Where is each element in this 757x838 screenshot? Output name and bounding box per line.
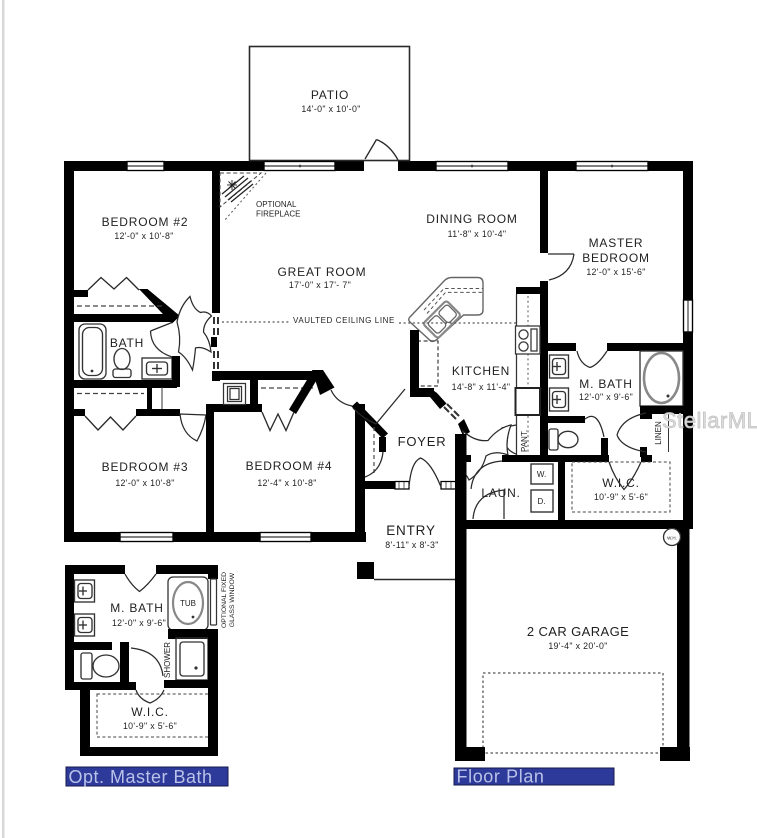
svg-text:KITCHEN: KITCHEN (452, 364, 510, 378)
svg-text:W.I.C.: W.I.C. (131, 705, 168, 719)
svg-text:PANT.: PANT. (520, 430, 529, 452)
svg-text:W.I.C.: W.I.C. (602, 476, 639, 490)
svg-text:10'-9" x 5'-6": 10'-9" x 5'-6" (594, 492, 648, 502)
svg-text:12'-0" x 9'-6": 12'-0" x 9'-6" (579, 392, 633, 402)
svg-text:12'-0" x 10'-8": 12'-0" x 10'-8" (115, 478, 174, 488)
svg-text:PATIO: PATIO (311, 88, 349, 102)
svg-text:12'-0" x 9'-6": 12'-0" x 9'-6" (112, 618, 166, 628)
svg-text:BEDROOM #4: BEDROOM #4 (246, 459, 333, 473)
svg-text:GLASS WINDOW: GLASS WINDOW (229, 572, 236, 627)
svg-text:D.: D. (538, 497, 546, 506)
svg-text:DINING ROOM: DINING ROOM (426, 212, 517, 226)
svg-text:Floor Plan: Floor Plan (457, 767, 545, 787)
svg-text:17'-0" x 17'- 7": 17'-0" x 17'- 7" (289, 280, 351, 290)
svg-text:W.: W. (537, 470, 546, 479)
svg-text:2 CAR GARAGE: 2 CAR GARAGE (527, 624, 629, 639)
svg-text:StellarMLS: StellarMLS (662, 408, 757, 433)
svg-text:Opt. Master Bath: Opt. Master Bath (69, 767, 213, 787)
svg-text:FOYER: FOYER (398, 434, 447, 449)
svg-text:12'-0" x 10'-8": 12'-0" x 10'-8" (114, 231, 173, 241)
svg-text:VAULTED CEILING LINE: VAULTED CEILING LINE (293, 316, 395, 325)
svg-text:MASTER: MASTER (589, 236, 644, 250)
svg-text:M. BATH: M. BATH (110, 601, 163, 615)
svg-text:GREAT ROOM: GREAT ROOM (278, 265, 367, 279)
svg-text:10'-9" x 5'-6": 10'-9" x 5'-6" (123, 721, 177, 731)
svg-text:SHOWER: SHOWER (163, 642, 172, 678)
svg-text:12'-4" x 10'-8": 12'-4" x 10'-8" (257, 478, 316, 488)
svg-text:8'-11" x 8'-3": 8'-11" x 8'-3" (385, 540, 438, 550)
svg-text:OPTIONAL FIXED: OPTIONAL FIXED (221, 572, 228, 628)
svg-text:14'-8" x 11'-4": 14'-8" x 11'-4" (452, 382, 511, 392)
svg-text:OPTIONAL: OPTIONAL (256, 200, 297, 209)
svg-text:12'-0" x 15'-6": 12'-0" x 15'-6" (586, 267, 645, 277)
svg-text:11'-8" x 10'-4": 11'-8" x 10'-4" (448, 229, 507, 239)
svg-text:LAUN.: LAUN. (481, 486, 520, 500)
svg-text:19'-4" x 20'-0": 19'-4" x 20'-0" (548, 641, 607, 651)
svg-text:BEDROOM #2: BEDROOM #2 (102, 215, 189, 229)
svg-text:ENTRY: ENTRY (386, 523, 436, 538)
svg-text:TUB: TUB (180, 599, 196, 608)
svg-text:BEDROOM #3: BEDROOM #3 (102, 460, 189, 474)
svg-text:FIREPLACE: FIREPLACE (256, 210, 300, 219)
svg-text:W.H.: W.H. (667, 536, 677, 541)
svg-text:BEDROOM: BEDROOM (582, 251, 650, 265)
svg-text:14'-0" x 10'-0": 14'-0" x 10'-0" (301, 104, 360, 114)
svg-text:BATH: BATH (110, 336, 144, 350)
svg-text:M. BATH: M. BATH (579, 377, 632, 391)
